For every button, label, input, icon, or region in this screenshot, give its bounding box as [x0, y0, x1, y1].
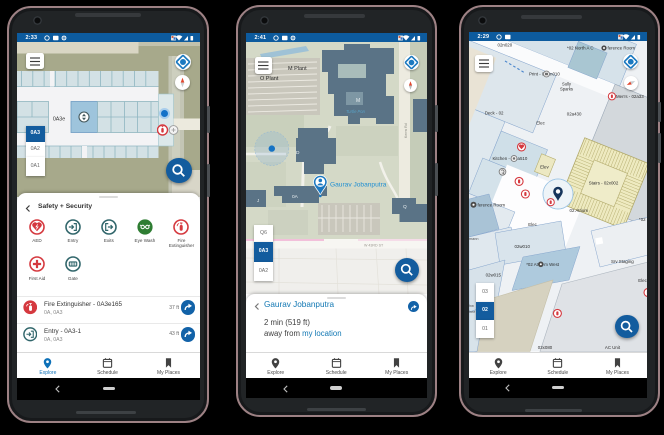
- svg-text:*02: *02: [639, 217, 646, 222]
- svg-text:Elev: Elev: [540, 165, 549, 170]
- svg-text:m West: m West: [544, 262, 560, 267]
- svg-text:Elec: Elec: [638, 278, 647, 283]
- svg-text:Turtle Pon: Turtle Pon: [346, 109, 366, 114]
- svg-text:mann: mann: [469, 237, 479, 241]
- svg-text:Print - 0: Print - 0: [529, 72, 545, 77]
- svg-text:0A: 0A: [292, 194, 299, 200]
- svg-text:Men's - 02a33: Men's - 02a33: [616, 94, 644, 99]
- svg-text:Elec: Elec: [536, 121, 545, 126]
- svg-text:hw: hw: [469, 304, 474, 308]
- svg-text:Stairs - 02x002: Stairs - 02x002: [588, 181, 618, 186]
- svg-text:M Plant: M Plant: [288, 66, 307, 72]
- svg-text:Q: Q: [403, 204, 407, 210]
- svg-text:O Plant: O Plant: [260, 76, 279, 82]
- svg-text:Gaurav Jobanputra: Gaurav Jobanputra: [330, 182, 387, 189]
- svg-text:ference Room: ference Room: [607, 46, 635, 51]
- svg-text:02n020: 02n020: [497, 43, 512, 48]
- svg-text:Elec: Elec: [528, 222, 537, 227]
- svg-text:a510: a510: [517, 156, 527, 161]
- svg-text:hee: hee: [469, 310, 475, 314]
- svg-text:Deck - 02: Deck - 02: [484, 111, 503, 116]
- svg-text:02x080: 02x080: [537, 345, 552, 350]
- svg-text:Sparks: Sparks: [559, 87, 572, 92]
- svg-text:*02 North A C: *02 North A C: [567, 46, 594, 51]
- svg-text:Srv Staging: Srv Staging: [611, 259, 634, 264]
- svg-text:J: J: [257, 198, 259, 203]
- svg-text:ference Room: ference Room: [477, 203, 505, 208]
- svg-text:AC Unit: AC Unit: [604, 345, 620, 350]
- svg-text:Kerns Rd: Kerns Rd: [404, 123, 408, 138]
- svg-text:W 43RD ST: W 43RD ST: [364, 244, 384, 248]
- svg-text:n010: n010: [550, 72, 560, 77]
- svg-text:M: M: [356, 98, 360, 104]
- svg-text:0A3e: 0A3e: [52, 117, 64, 123]
- svg-text:D: D: [296, 150, 300, 156]
- svg-text:02 Atrium: 02 Atrium: [569, 208, 588, 213]
- svg-text:*02 At: *02 At: [526, 262, 538, 267]
- svg-text:02a430: 02a430: [566, 112, 581, 117]
- svg-text:02w015: 02w015: [485, 273, 501, 278]
- svg-text:02w010: 02w010: [514, 244, 530, 249]
